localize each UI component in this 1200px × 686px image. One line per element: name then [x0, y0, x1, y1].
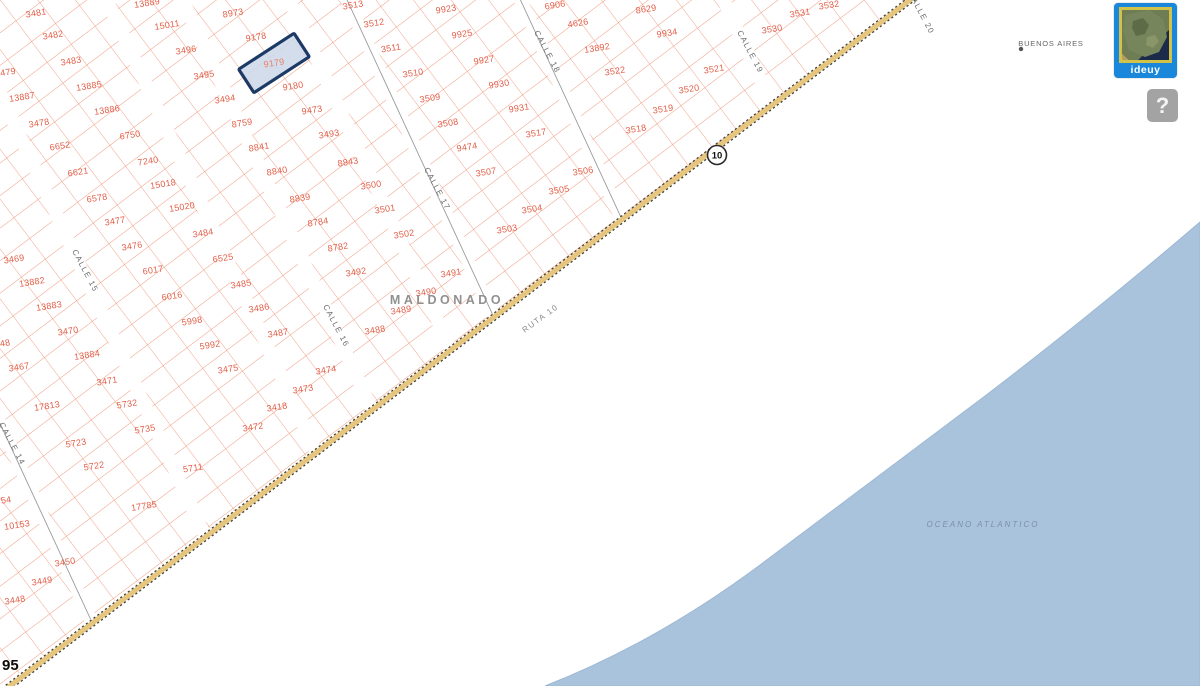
map-viewport: 9179 13889897334813482348347913887150113…	[0, 0, 1200, 686]
ideuy-logo-widget[interactable]: ideuy	[1114, 3, 1177, 78]
ocean-label: OCEANO ATLANTICO	[927, 520, 1040, 529]
bottom-left-cut-label: 95	[2, 657, 19, 674]
map-canvas[interactable]: 9179 13889897334813482348347913887150113…	[0, 0, 1200, 686]
help-button[interactable]: ?	[1147, 89, 1178, 122]
uruguay-satellite-thumbnail	[1119, 7, 1172, 63]
parcel-label: 54	[0, 494, 12, 506]
region-label-maldonado: MALDONADO	[390, 293, 504, 307]
place-label-buenos-aires: BUENOS AIRES	[1018, 39, 1083, 48]
parcel-label: 48	[0, 337, 11, 349]
ideuy-logo-text: ideuy	[1131, 63, 1161, 77]
route-10-shield: 10	[708, 146, 727, 165]
route-shield-number: 10	[712, 151, 723, 162]
